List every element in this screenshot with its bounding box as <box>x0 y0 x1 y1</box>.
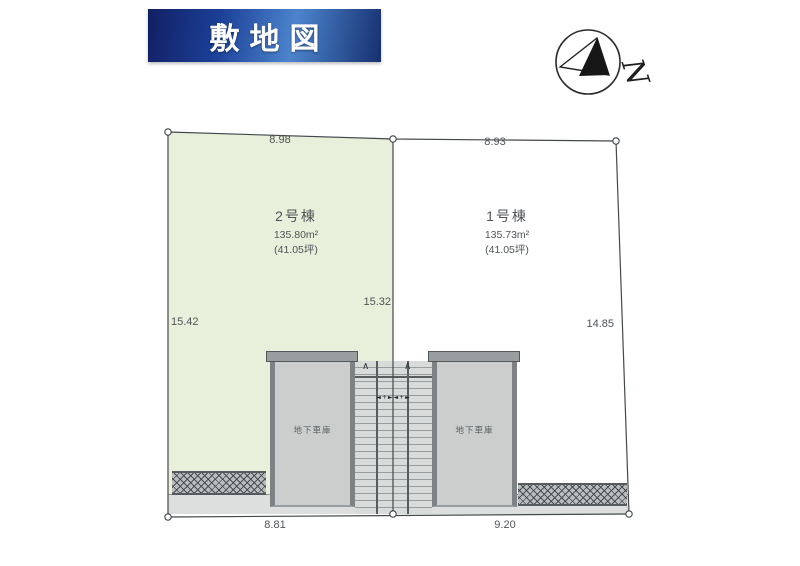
staircase: ∧ ∧ ◄+►◄+► <box>355 361 432 514</box>
title-banner: 敷地図 <box>148 9 381 62</box>
lot-2-label: 2号棟 135.80m² (41.05坪) <box>231 206 361 257</box>
dimension-right: 14.85 <box>580 318 614 330</box>
page-title: 敷地図 <box>200 14 330 58</box>
lot-area-tsubo: (41.05坪) <box>442 242 572 257</box>
garage-label: 地下車庫 <box>437 424 512 436</box>
retaining-wall-hatch-right <box>518 483 627 506</box>
lot-1-label: 1号棟 135.73m² (41.05坪) <box>442 206 572 257</box>
corner-marker <box>165 514 171 520</box>
dimension-left: 15.42 <box>171 316 199 328</box>
stair-landing-line <box>355 376 432 378</box>
dimension-top-right: 8.93 <box>455 136 535 148</box>
corner-marker <box>613 138 619 144</box>
lot-area-tsubo: (41.05坪) <box>231 242 361 257</box>
dimension-bottom-left: 8.81 <box>235 519 315 531</box>
retaining-wall-hatch-left <box>172 471 266 495</box>
stair-up-arrow-icon: ∧ <box>362 362 369 372</box>
dimension-middle: 15.32 <box>356 296 391 308</box>
garage-left-cap <box>266 351 358 362</box>
boundary-right <box>616 141 629 514</box>
lot-area-m2: 135.80m² <box>231 229 361 241</box>
lot-name: 1号棟 <box>442 206 572 226</box>
lot-area-m2: 135.73m² <box>442 229 572 241</box>
stair-up-arrow-icon: ∧ <box>404 362 411 372</box>
boundary-bottom <box>168 514 629 517</box>
site-plan-page: 敷地図 N ∧ ∧ ◄+►◄+► 地下車庫 地下車庫 <box>0 0 800 566</box>
dimension-bottom-right: 9.20 <box>465 519 545 531</box>
garage-left: 地下車庫 <box>270 362 355 507</box>
stair-direction-marks-icon: ◄+►◄+► <box>355 394 432 401</box>
stair-rail <box>407 361 409 514</box>
garage-right: 地下車庫 <box>432 362 517 507</box>
garage-right-cap <box>428 351 520 362</box>
lot-name: 2号棟 <box>231 206 361 226</box>
stair-rail <box>376 361 378 514</box>
north-compass-icon: N <box>545 18 665 110</box>
garage-label: 地下車庫 <box>275 424 350 436</box>
dimension-top-left: 8.98 <box>240 134 320 146</box>
